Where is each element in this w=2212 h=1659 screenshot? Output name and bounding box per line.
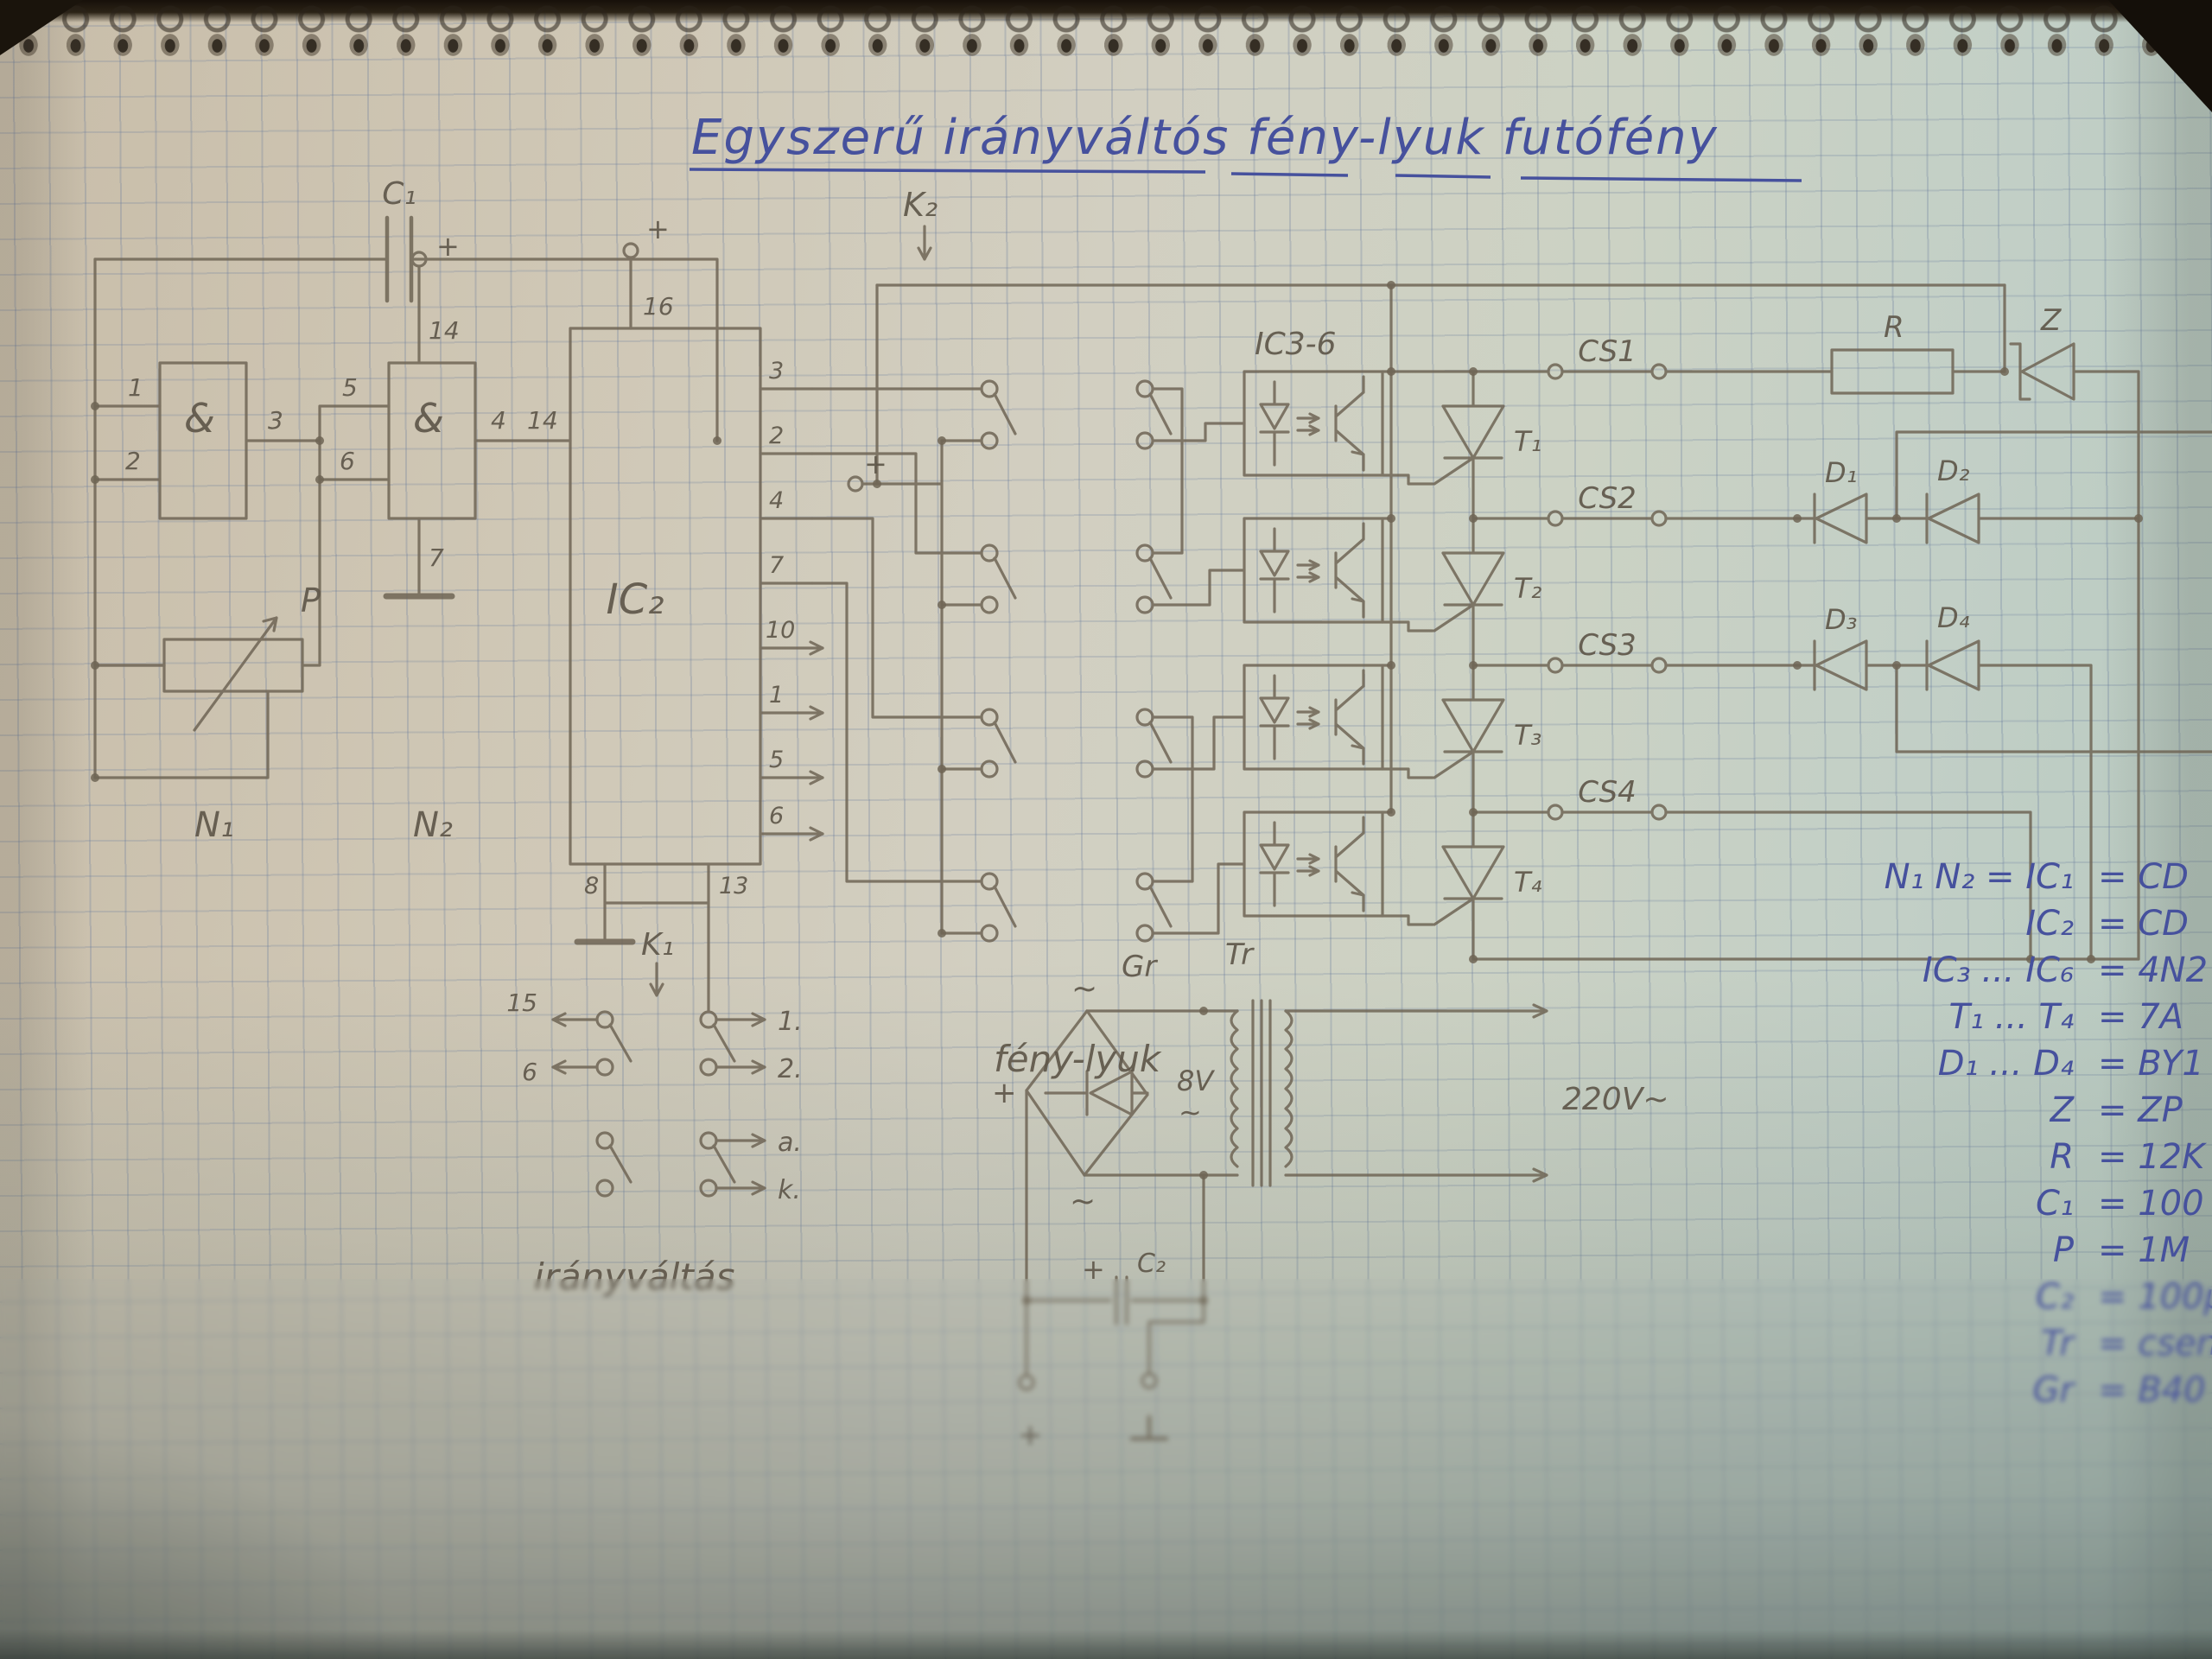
cs1-terminal (1548, 365, 1562, 378)
k1-right-1: 1. (778, 1007, 803, 1037)
ic2-pin-3: 3 (769, 358, 784, 385)
pin-label-4: 4 (491, 406, 506, 435)
parts-row-value: = CD (2098, 857, 2189, 897)
parts-row-name: D₁ ... D₄ (1938, 1044, 2074, 1084)
thyristor-t2 (1434, 518, 1503, 665)
plus-k2: + (864, 448, 887, 480)
k1-contact (701, 1180, 716, 1196)
k2-contact (982, 761, 997, 777)
parts-row-name: C₁ (2036, 1184, 2074, 1224)
k1-contact (701, 1059, 716, 1075)
osc-input-stubs (95, 406, 268, 778)
parts-row-value: = 4N2 (2098, 950, 2208, 990)
pin-label-14-gate: 14 (429, 316, 460, 345)
k2-levers (995, 394, 1171, 926)
ic2-pin-4: 4 (769, 487, 784, 514)
k2-contact (1137, 761, 1153, 777)
label-d2: D₂ (1937, 454, 1970, 487)
cs1-terminal (1652, 365, 1666, 378)
k1-right-2: 2. (778, 1054, 803, 1084)
ic2-pin16-terminal (624, 244, 638, 257)
parts-row-name: IC₃ ... IC₆ (1923, 950, 2074, 990)
label-z: Z (2040, 303, 2062, 338)
cs4-terminal (1548, 805, 1562, 819)
k1-arrow (651, 963, 663, 995)
spiral-binding (5, 0, 2212, 86)
label-t4: T₄ (1514, 866, 1542, 899)
label-p: P (301, 582, 321, 620)
pin-label-7: 7 (429, 543, 444, 572)
ic2-pin-1: 1 (769, 682, 784, 709)
label-r: R (1884, 310, 1904, 345)
k2-to-opto-wires (1153, 423, 1244, 933)
optocoupler-ic3 (1244, 372, 1433, 484)
pin-label-13: 13 (719, 873, 748, 899)
cs4-terminal (1652, 805, 1666, 819)
ic2-pin-6: 6 (769, 803, 784, 829)
label-d1: D₁ (1825, 456, 1857, 489)
label-cs4: CS4 (1578, 775, 1637, 810)
pin-label-6: 6 (340, 447, 355, 475)
pin-label-16: 16 (643, 292, 674, 321)
d3-d4-tap (1897, 665, 2212, 752)
photo-corner-shadow-right (2108, 0, 2212, 112)
diode-d3 (1815, 641, 1927, 690)
pin-label-14-ic2: 14 (527, 406, 558, 435)
label-k1: K₁ (641, 927, 674, 963)
k2-arrow (918, 226, 931, 259)
k2-contact (982, 925, 997, 941)
k2-cross-links (1153, 389, 1192, 881)
capacitor-c1-plates (387, 218, 411, 301)
parts-row-name: Z (2050, 1090, 2075, 1130)
k1-contact (597, 1180, 613, 1196)
parts-row-name: IC₂ (2025, 904, 2074, 944)
label-ic2: IC₂ (607, 575, 664, 624)
k2-contact (1137, 925, 1153, 941)
parts-row-value: = 100 (2098, 1184, 2204, 1224)
k1-levers (610, 1025, 734, 1182)
label-8v: 8V (1177, 1065, 1215, 1097)
ic2-arrow-pins (810, 642, 823, 840)
tilde-8v: ~ (1179, 1096, 1202, 1128)
pin-label-1: 1 (128, 373, 143, 402)
cs3-terminal (1652, 658, 1666, 672)
k2-contact (1137, 597, 1153, 613)
k1-left-wires (553, 1014, 597, 1073)
thyristor-t4 (1434, 812, 1503, 959)
potentiometer-p-arrow (194, 618, 276, 730)
thyristor-t3 (1434, 665, 1503, 812)
cs3-terminal (1548, 658, 1562, 672)
k1-right-a: a. (778, 1128, 802, 1158)
parts-row-value: = 7A (2098, 997, 2183, 1037)
label-cs3: CS3 (1578, 628, 1637, 663)
ic2-pin-7: 7 (769, 552, 784, 579)
k1-left-15: 15 (506, 988, 537, 1017)
label-tr: Tr (1225, 938, 1255, 972)
out-of-focus-page-bottom (0, 1279, 2212, 1659)
label-n1: N₁ (194, 805, 234, 845)
label-d3: D₃ (1825, 603, 1857, 636)
parts-row-name: T₁ ... T₄ (1948, 997, 2074, 1037)
junction-dots (91, 281, 2143, 1305)
k1-right-k: k. (778, 1175, 801, 1205)
label-ic3-6: IC3-6 (1255, 327, 1337, 362)
label-c2: C₂ (1137, 1249, 1166, 1279)
label-t2: T₂ (1514, 572, 1542, 605)
label-c1: C₁ (382, 176, 416, 212)
k1-left-6: 6 (522, 1058, 537, 1086)
k2-plus-terminal (849, 477, 862, 491)
resistor-r (1832, 350, 1953, 393)
notebook-photo: Egyszerű irányváltós fény-lyuk futófény … (0, 0, 2212, 1659)
ic2-box (570, 328, 760, 864)
gate-symbol-n1: & (184, 395, 215, 442)
tilde-top: ~ (1071, 971, 1097, 1007)
label-gr: Gr (1122, 950, 1158, 984)
title-underlines (690, 169, 1802, 181)
label-t1: T₁ (1514, 425, 1541, 458)
diode-d1 (1815, 494, 1927, 543)
cs2-terminal (1548, 512, 1562, 525)
tilde-bottom: ~ (1070, 1184, 1096, 1219)
parts-row-value: = CD (2098, 904, 2189, 944)
label-cs2: CS2 (1578, 481, 1637, 516)
k2-common-bus (862, 285, 982, 933)
parts-row-value: = ZP (2098, 1090, 2183, 1130)
label-220v: 220V~ (1562, 1082, 1669, 1117)
parts-row-value: = 12K (2098, 1137, 2207, 1177)
k2-contact (982, 433, 997, 448)
ic2-to-k2-wires (812, 389, 982, 881)
ic2-pin-10: 10 (766, 617, 795, 644)
transformer-tr (1231, 1001, 1547, 1185)
label-cs1: CS1 (1578, 334, 1637, 369)
gate-symbol-n2: & (413, 395, 444, 442)
page-title: Egyszerű irányváltós fény-lyuk futófény (691, 110, 1719, 166)
pin-label-5: 5 (342, 373, 358, 402)
cs1-row (1391, 285, 2005, 372)
parts-row-value: = 1M (2098, 1230, 2190, 1270)
label-feny-lyuk: fény-lyuk (994, 1038, 1162, 1080)
plus-n2: + (436, 230, 460, 263)
parts-row-value: = BY1 (2098, 1044, 2204, 1084)
ic2-pin-5: 5 (769, 747, 784, 773)
potentiometer-p-wires (95, 480, 320, 665)
ic2-pin-2: 2 (769, 423, 784, 449)
k1-contact (597, 1059, 613, 1075)
k2-contact (982, 597, 997, 613)
optocoupler-ic5 (1244, 665, 1433, 778)
label-k2: K₂ (903, 186, 938, 224)
label-t3: T₃ (1514, 719, 1541, 752)
thyristor-t1 (1434, 372, 1503, 518)
parts-row-name: N₁ N₂ = IC₁ (1885, 857, 2074, 897)
cs2-terminal (1652, 512, 1666, 525)
plus-bridge: + (992, 1076, 1017, 1110)
plus-ic2: + (646, 213, 670, 245)
diode-d2 (1927, 494, 2139, 543)
optocoupler-ic6 (1244, 812, 1433, 925)
pin-label-8: 8 (584, 873, 599, 899)
photo-corner-shadow-left (0, 0, 83, 55)
label-d4: D₄ (1937, 601, 1970, 634)
parts-row-name: P (2053, 1230, 2075, 1270)
osc-gate-wiring (246, 406, 570, 480)
notebook-bottom-edge (0, 1630, 2212, 1659)
optocoupler-ic4 (1244, 518, 1433, 631)
parts-row-name: R (2050, 1137, 2074, 1177)
label-n2: N₂ (413, 805, 453, 845)
pin-label-2: 2 (125, 447, 141, 475)
pin-label-3: 3 (268, 406, 283, 435)
k2-contact (1137, 433, 1153, 448)
potentiometer-p (164, 639, 302, 691)
